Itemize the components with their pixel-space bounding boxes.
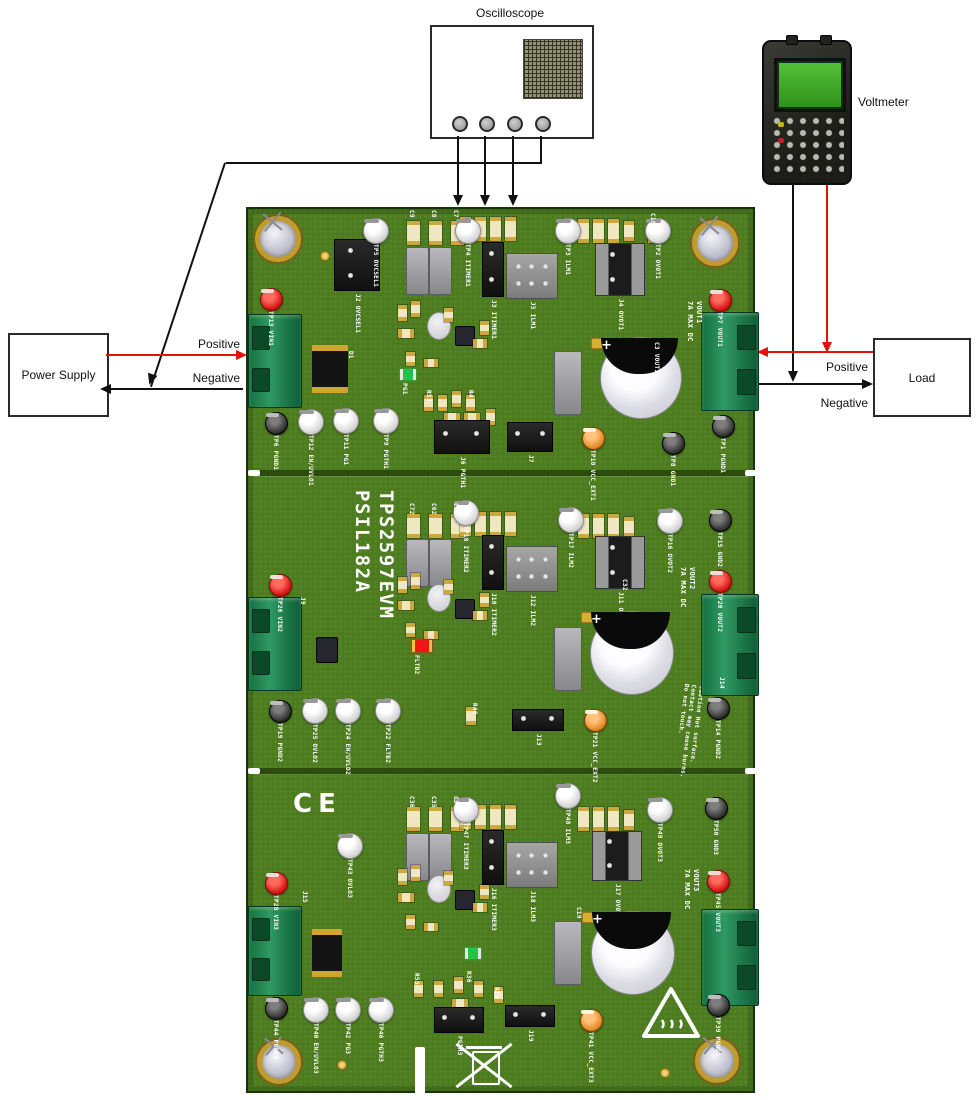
jumper-pin (610, 545, 615, 550)
jumper-pin (489, 865, 494, 870)
testpoint-tp46 (368, 997, 394, 1023)
test-setup-diagram: Oscilloscope Voltmeter Power Supply Load… (0, 0, 979, 1100)
mounting-screw (257, 1040, 301, 1084)
jumper-pin (489, 570, 494, 575)
jumper-j5 (506, 253, 558, 299)
supply-negative-label: Negative (150, 371, 240, 385)
testpoint-slot (708, 698, 721, 702)
weee-bar (415, 1047, 425, 1095)
jumper-j17 (592, 831, 642, 881)
terminal-wire-hole (252, 958, 270, 981)
capacitor-polarity-mark: + (591, 612, 679, 627)
silkscreen-text: J14 (718, 677, 726, 689)
silkscreen-text: TP15 GND2 (716, 532, 724, 567)
silkscreen-text: PGTH3 (456, 1036, 464, 1056)
jumper-pin (543, 574, 548, 579)
silkscreen-text: TP11 PG1 (342, 434, 350, 465)
jumper-pin (529, 853, 534, 858)
terminal-block-vout3 (701, 909, 759, 1006)
component-passv (424, 359, 438, 367)
testpoint-tp28 (265, 872, 288, 895)
jumper-pin (543, 264, 548, 269)
wire-supply-positive (106, 354, 236, 356)
jumper-pin (610, 252, 615, 257)
component-passv (438, 395, 447, 411)
testpoint-tp20 (709, 570, 732, 593)
load: Load (873, 338, 971, 417)
oscilloscope-label: Oscilloscope (430, 6, 590, 20)
component-passv (424, 923, 438, 931)
silkscreen-text: TP1 PGND1 (719, 438, 727, 473)
testpoint-tp42 (335, 997, 361, 1023)
component-gray (554, 351, 582, 415)
component-passv (398, 893, 414, 902)
component-passv (407, 514, 420, 538)
silkscreen-text: C9 (408, 210, 416, 218)
testpoint-tp8 (662, 432, 685, 455)
component-passv (424, 631, 438, 639)
silkscreen-text: J12 ILM2 (529, 595, 537, 626)
voltmeter (762, 40, 852, 185)
silkscreen-text: TP20 VOUT2 (716, 593, 724, 632)
jumper-pin (516, 853, 521, 858)
jumper-j4 (595, 243, 645, 296)
component-passv (593, 807, 604, 831)
testpoint-slot (559, 508, 574, 512)
testpoint-tp9 (373, 408, 399, 434)
testpoint-slot (261, 289, 274, 293)
board-routing-notch (745, 768, 757, 774)
jumper-pin (529, 574, 534, 579)
silkscreen-text: C52 (452, 503, 460, 515)
testpoint-tp21 (584, 709, 607, 732)
testpoint-slot (663, 433, 676, 437)
silkscreen-text: J19 (527, 1030, 535, 1042)
silkscreen-text: R40 (471, 703, 479, 715)
power-supply-label: Power Supply (21, 368, 95, 382)
testpoint-slot (364, 219, 379, 223)
silkscreen-text: R4 (467, 390, 475, 398)
component-gray (554, 921, 582, 985)
jumper-pin (529, 870, 534, 875)
component-ic (455, 599, 475, 619)
component-ledr (412, 640, 432, 652)
board-section-separator (254, 470, 751, 476)
board-routing-notch (248, 768, 260, 774)
wire-load-negative (757, 383, 862, 385)
testpoint-tp41 (580, 1009, 603, 1032)
testpoint-slot (376, 699, 391, 703)
terminal-wire-hole (252, 918, 270, 941)
silkscreen-text: C32 (621, 579, 629, 591)
testpoint-tp14 (707, 697, 730, 720)
component-passv (624, 221, 634, 241)
silkscreen-text: TP14 PGND2 (714, 720, 722, 759)
silkscreen-text: R53 (425, 390, 433, 402)
load-label: Load (909, 371, 936, 385)
jumper-j3 (482, 242, 504, 297)
mounting-screw (692, 220, 738, 266)
hot-surface-warning-icon (640, 985, 702, 1041)
silkscreen-text: J15 (301, 891, 309, 903)
silkscreen-text: C3 VOUT1 (653, 342, 661, 373)
capacitor-c32: + (590, 611, 674, 695)
mounting-screw (255, 216, 301, 262)
testpoint-slot (266, 873, 279, 877)
silkscreen-text: TP42 PG3 (344, 1023, 352, 1054)
component-ic (455, 890, 475, 910)
component-passv (608, 219, 619, 243)
silkscreen-text: J5 ILM1 (529, 302, 537, 329)
testpoint-tp7 (709, 289, 732, 312)
testpoint-slot (648, 798, 663, 802)
silkscreen-text: TP4 ITIMER1 (464, 244, 472, 287)
jumper-pin (516, 557, 521, 562)
component-passv (406, 623, 415, 637)
silkscreen-text: J10 ITIMER2 (490, 593, 498, 636)
silkscreen-text: TP7 VOUT1 (716, 312, 724, 347)
jumper-pin (516, 264, 521, 269)
component-chip (312, 929, 342, 977)
component-dotg (660, 1068, 670, 1078)
testpoint-tp4 (455, 218, 481, 244)
voltmeter-key (778, 138, 784, 143)
component-passv (406, 352, 415, 366)
component-passv (398, 305, 407, 321)
testpoint-tp44 (265, 997, 288, 1020)
wire-scope-probe-3 (512, 136, 514, 195)
voltmeter-terminal (786, 35, 798, 45)
testpoint-slot (336, 998, 351, 1002)
component-passv (473, 339, 487, 348)
testpoint-tp11 (333, 408, 359, 434)
jumper-j16 (482, 830, 504, 885)
silkscreen-text: TP45 VOUT3 (714, 893, 722, 932)
arrowhead-scope-probe-2 (480, 195, 490, 206)
testpoint-tp49 (647, 797, 673, 823)
component-passv (624, 810, 634, 830)
component-passv (398, 329, 414, 338)
silkscreen-text: C62 (430, 503, 438, 515)
silkscreen-text: TP28 VIN3 (272, 895, 280, 930)
silkscreen-text: R55 (413, 973, 421, 985)
jumper-pin (607, 839, 612, 844)
testpoint-tp25 (302, 698, 328, 724)
silkscreen-text: J4 OVOT1 (617, 299, 625, 330)
terminal-wire-hole (737, 921, 756, 946)
wire-supply-negative (111, 388, 243, 390)
wire-voltmeter-negative (792, 185, 794, 372)
silkscreen-text: D1 (347, 351, 355, 359)
silkscreen-text: TP12 EN/UVLO1 (307, 435, 315, 486)
silkscreen-text: J9 (299, 597, 307, 605)
tps2597evm-board: CE ti TEXAS INSTRUMENTS TPS2597EVM PSIL1… (246, 207, 755, 1093)
component-passv (411, 573, 420, 589)
component-passv (578, 807, 589, 831)
testpoint-slot (266, 998, 279, 1002)
load-positive-label: Positive (790, 360, 868, 374)
testpoint-tp13 (260, 288, 283, 311)
component-passv (490, 217, 501, 241)
component-passv (480, 593, 489, 607)
oscilloscope-channel4-connector (535, 116, 551, 132)
board-routing-notch (745, 470, 757, 476)
testpoint-tp43 (337, 833, 363, 859)
jumper-pin (610, 277, 615, 282)
jumper-pin (442, 1015, 447, 1020)
testpoint-slot (303, 699, 318, 703)
jumper-pin (610, 570, 615, 575)
oscilloscope-channel1-connector (452, 116, 468, 132)
board-routing-notch (248, 470, 260, 476)
silkscreen-text: C8 (430, 210, 438, 218)
component-passv (473, 903, 487, 912)
component-ledg (400, 369, 416, 380)
silkscreen-text: C36 (408, 796, 416, 808)
voltmeter-label: Voltmeter (858, 95, 909, 109)
terminal-wire-hole (737, 607, 756, 633)
component-dotg (320, 251, 330, 261)
silkscreen-text: VOUT2 7A MAX DC (679, 567, 697, 608)
testpoint-tp45 (707, 870, 730, 893)
component-passv (624, 517, 634, 537)
testpoint-slot (374, 409, 389, 413)
oscilloscope (430, 25, 594, 139)
silkscreen-text: TP13 VIN1 (267, 311, 275, 346)
terminal-wire-hole (737, 965, 756, 990)
terminal-wire-hole (252, 368, 270, 392)
wire-scope-probe-1 (457, 136, 459, 195)
silkscreen-text: C10 (649, 213, 657, 225)
silkscreen-text: TP2 OVOT1 (654, 244, 662, 279)
jumper-pin (543, 853, 548, 858)
jumper-pin (348, 248, 353, 253)
component-gray (554, 627, 582, 691)
ce-mark: CE (293, 789, 342, 819)
silkscreen-text: TP5 OVCSEL1 (372, 244, 380, 287)
capacitor-c19: + (591, 911, 675, 995)
component-passv (505, 805, 516, 829)
testpoint-tp12 (298, 409, 324, 435)
jumper-pin (529, 557, 534, 562)
component-passv (593, 219, 604, 243)
component-passv (452, 391, 461, 407)
component-passv (593, 514, 604, 538)
silkscreen-text: VOUT1 7A MAX DC (686, 301, 704, 342)
silkscreen-text: C34 (452, 796, 460, 808)
silkscreen-text: TP10 VCC_EXT1 (589, 450, 597, 501)
component-passv (407, 221, 420, 245)
jumper-pin (489, 251, 494, 256)
silkscreen-text: Caution Hot surface. Contact may cause b… (671, 683, 705, 779)
load-negative-label: Negative (790, 396, 868, 410)
silkscreen-text: R36 (465, 971, 473, 983)
terminal-wire-hole (252, 609, 270, 633)
jumper-j19 (505, 1005, 555, 1027)
jumper-pin (513, 1012, 518, 1017)
silkscreen-text: TP26 VIN2 (276, 597, 284, 632)
component-ledg (465, 948, 481, 959)
testpoint-slot (706, 798, 719, 802)
supply-positive-label: Positive (150, 337, 240, 351)
testpoint-tp19 (269, 700, 292, 723)
component-passv (505, 512, 516, 536)
testpoint-slot (708, 995, 721, 999)
component-passv (398, 577, 407, 593)
silkscreen-text: TP44 PGND3 (272, 1020, 280, 1059)
testpoint-slot (556, 784, 571, 788)
testpoint-slot (583, 428, 596, 432)
wire-load-positive (767, 351, 873, 353)
arrowhead-supply-negative (100, 384, 111, 394)
testpoint-slot (713, 416, 726, 420)
jumper-j12 (506, 546, 558, 592)
silkscreen-text: J13 (535, 734, 543, 746)
jumper-pin (348, 273, 353, 278)
testpoint-tp22 (375, 698, 401, 724)
jumper-pin (516, 574, 521, 579)
silkscreen-text: TP9 PGTH1 (382, 434, 390, 469)
jumper-pin (516, 281, 521, 286)
jumper-pin (541, 1012, 546, 1017)
testpoint-slot (556, 219, 571, 223)
terminal-block-vin1 (248, 314, 302, 408)
silkscreen-text: J3 ITIMER1 (490, 300, 498, 339)
component-passv (454, 977, 463, 993)
terminal-block-vout1 (701, 312, 759, 411)
testpoint-slot (299, 410, 314, 414)
testpoint-tp5 (363, 218, 389, 244)
component-passv (444, 871, 453, 885)
jumper-pin (607, 863, 612, 868)
terminal-block-vout2 (701, 594, 759, 696)
wire-scope-probe-2 (484, 136, 486, 195)
testpoint-slot (270, 575, 283, 579)
testpoint-slot (708, 871, 721, 875)
component-passv (429, 221, 442, 245)
component-passv (490, 805, 501, 829)
silkscreen-text: TP24 EN/UVLO2 (344, 724, 352, 775)
silkscreen-text: J7 (527, 455, 535, 463)
component-passv (490, 512, 501, 536)
testpoint-tp10 (582, 427, 605, 450)
testpoint-tp39 (707, 994, 730, 1017)
testpoint-slot (658, 509, 673, 513)
component-passv (608, 807, 619, 831)
component-passv (480, 885, 489, 899)
silkscreen-text: FLTB2 (413, 655, 421, 675)
wire-scope-ground-vertical (540, 136, 542, 164)
testpoint-slot (456, 219, 471, 223)
testpoint-slot (581, 1010, 594, 1014)
voltmeter-terminal (820, 35, 832, 45)
testpoint-slot (304, 998, 319, 1002)
silkscreen-text: TP50 GND3 (712, 820, 720, 855)
component-passv (429, 807, 442, 831)
component-passv (411, 301, 420, 317)
silkscreen-text: C35 (430, 796, 438, 808)
voltmeter-key (778, 122, 784, 127)
power-supply: Power Supply (8, 333, 109, 417)
silkscreen-text: TP22 FLTB2 (384, 724, 392, 763)
jumper-pin (529, 264, 534, 269)
component-gray (429, 247, 452, 295)
silkscreen-text: TP19 PGND2 (276, 723, 284, 762)
component-passv (608, 514, 619, 538)
testpoint-slot (338, 834, 353, 838)
testpoint-slot (585, 710, 598, 714)
arrowhead-scope-probe-3 (508, 195, 518, 206)
jumper-pgth3 (434, 1007, 484, 1033)
jumper-pin (543, 557, 548, 562)
capacitor-c3: + (600, 337, 682, 419)
voltmeter-screen (774, 58, 846, 112)
silkscreen-text: TP40 EN/UVLO3 (312, 1023, 320, 1074)
silkscreen-text: R29 (493, 987, 501, 999)
component-passv (444, 580, 453, 594)
terminal-wire-hole (737, 325, 756, 350)
component-passv (444, 308, 453, 322)
silkscreen-text: TP41 VCC_EXT3 (587, 1032, 595, 1083)
jumper-pin (489, 544, 494, 549)
testpoint-tp3 (555, 218, 581, 244)
jumper-pin (529, 281, 534, 286)
oscilloscope-channel2-connector (479, 116, 495, 132)
jumper-j13 (512, 709, 564, 731)
jumper-pin (543, 281, 548, 286)
silkscreen-text: TP18 ITIMER2 (462, 526, 470, 573)
jumper-j6 (434, 420, 490, 454)
testpoint-slot (270, 701, 283, 705)
testpoint-slot (266, 413, 279, 417)
component-passv (505, 217, 516, 241)
component-dotg (337, 1060, 347, 1070)
capacitor-polarity-mark: + (592, 912, 680, 927)
wire-scope-ground-horizontal (226, 162, 542, 164)
jumper-pin (515, 431, 520, 436)
testpoint-slot (369, 998, 384, 1002)
silkscreen-text: TP16 OVOT2 (666, 534, 674, 573)
wire-voltmeter-positive (826, 185, 828, 343)
testpoint-tp26 (269, 574, 292, 597)
silkscreen-text: J2 OVCSEL1 (354, 294, 362, 333)
silkscreen-text: TP47 ITIMER3 (462, 823, 470, 870)
silkscreen-text: TP49 OVOT3 (656, 823, 664, 862)
testpoint-tp15 (709, 509, 732, 532)
component-passv (480, 321, 489, 335)
silkscreen-text: C72 (408, 503, 416, 515)
silkscreen-text: TP3 ILM1 (564, 244, 572, 275)
silkscreen-text: J16 ITIMER3 (490, 888, 498, 931)
testpoint-slot (710, 510, 723, 514)
component-ic (455, 326, 475, 346)
silkscreen-text: C7 (452, 210, 460, 218)
silkscreen-text: PG1 (401, 383, 409, 395)
silkscreen-text: TP39 PGND3 (714, 1017, 722, 1056)
component-passv (398, 869, 407, 885)
component-passv (429, 514, 442, 538)
testpoint-tp6 (265, 412, 288, 435)
testpoint-tp1 (712, 415, 735, 438)
testpoint-slot (336, 699, 351, 703)
jumper-pin (516, 870, 521, 875)
component-passv (473, 611, 487, 620)
component-passv (411, 865, 420, 881)
silkscreen-text: TP46 PGTH3 (377, 1023, 385, 1062)
testpoint-tp48 (555, 783, 581, 809)
silkscreen-text: TP48 ILM3 (564, 809, 572, 844)
silkscreen-text: J18 ILM3 (529, 891, 537, 922)
